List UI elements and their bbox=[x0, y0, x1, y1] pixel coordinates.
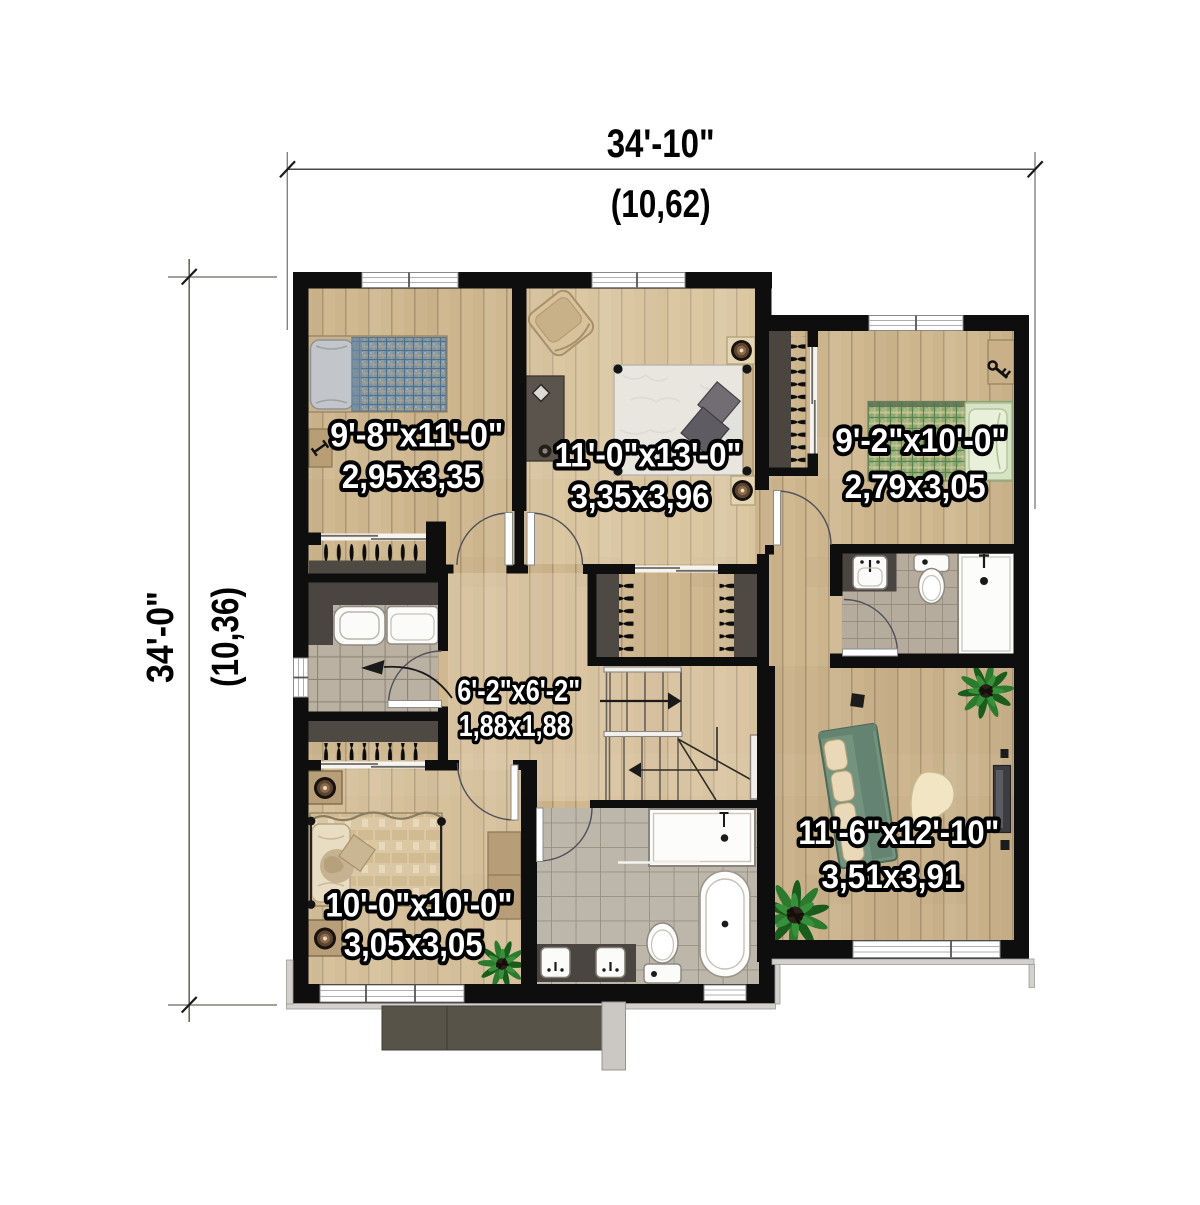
svg-text:3,51x3,91: 3,51x3,91 bbox=[822, 858, 962, 896]
svg-text:(10,62): (10,62) bbox=[611, 183, 711, 226]
svg-text:11'-0"x13'-0": 11'-0"x13'-0" bbox=[555, 437, 742, 475]
svg-text:(10,36): (10,36) bbox=[205, 587, 247, 687]
svg-text:2,95x3,35: 2,95x3,35 bbox=[342, 458, 481, 496]
svg-text:10'-0"x10'-0": 10'-0"x10'-0" bbox=[325, 887, 512, 925]
svg-text:6'-2"x6'-2": 6'-2"x6'-2" bbox=[457, 673, 580, 708]
svg-text:1,88x1,88: 1,88x1,88 bbox=[459, 708, 571, 743]
svg-text:9'-8"x11'-0": 9'-8"x11'-0" bbox=[330, 417, 503, 455]
svg-text:9'-2"x10'-0": 9'-2"x10'-0" bbox=[835, 422, 1006, 460]
svg-text:11'-6"x12'-10": 11'-6"x12'-10" bbox=[798, 814, 999, 852]
svg-text:2,79x3,05: 2,79x3,05 bbox=[845, 468, 986, 506]
svg-text:34'-10": 34'-10" bbox=[607, 122, 715, 166]
svg-text:3,35x3,96: 3,35x3,96 bbox=[571, 478, 710, 516]
svg-text:3,05x3,05: 3,05x3,05 bbox=[344, 926, 483, 964]
svg-text:34'-0": 34'-0" bbox=[140, 591, 182, 683]
